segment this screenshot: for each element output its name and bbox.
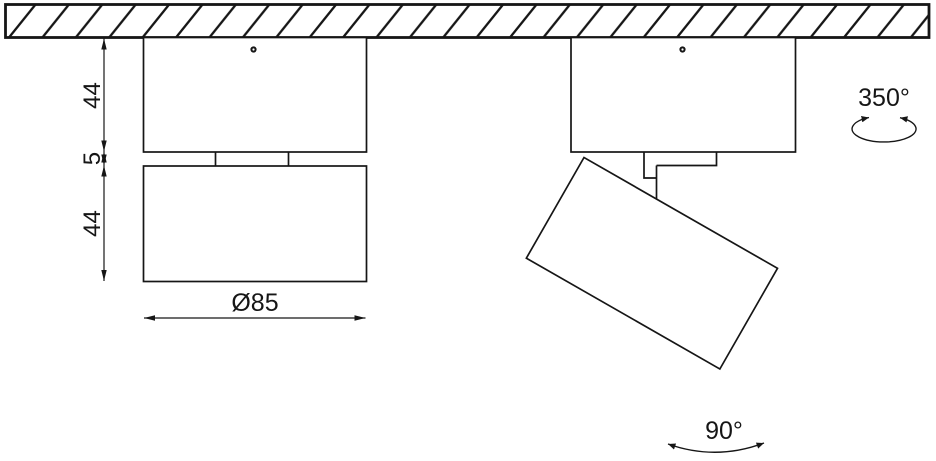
- dim-label-gap: 5: [79, 152, 106, 165]
- fixture-straight: [144, 38, 367, 282]
- screw-dot: [679, 46, 685, 52]
- pan-rotation-label: 350°: [858, 84, 910, 112]
- pan-rotation-symbol: 350°: [852, 84, 916, 142]
- mounting-base: [571, 38, 796, 153]
- lamp-head-tilted: [526, 158, 777, 369]
- tilt-rotation-symbol: 90°: [668, 417, 764, 452]
- diameter-dimension: Ø85: [144, 289, 366, 318]
- mounting-base: [144, 38, 367, 153]
- screw-dot: [250, 46, 256, 52]
- tilt-rotation-label: 90°: [705, 417, 743, 445]
- lamp-head: [144, 166, 367, 282]
- spotlight-dimension-drawing: 44 5 44 Ø85 350° 90°: [0, 0, 936, 461]
- technical-drawing-canvas: 44 5 44 Ø85 350° 90°: [0, 0, 936, 461]
- hinge-bracket-outer: [644, 152, 657, 178]
- ceiling-section: [6, 5, 930, 38]
- dim-label-head-height: 44: [79, 210, 106, 237]
- ellipse-rotation-arrow: [852, 118, 916, 142]
- hinge-bracket-inner: [657, 152, 717, 166]
- fixture-tilted: [526, 38, 795, 369]
- ceiling-hatch-fill: [6, 5, 930, 38]
- dim-label-base-height: 44: [79, 82, 106, 109]
- dim-label-diameter: Ø85: [231, 289, 278, 317]
